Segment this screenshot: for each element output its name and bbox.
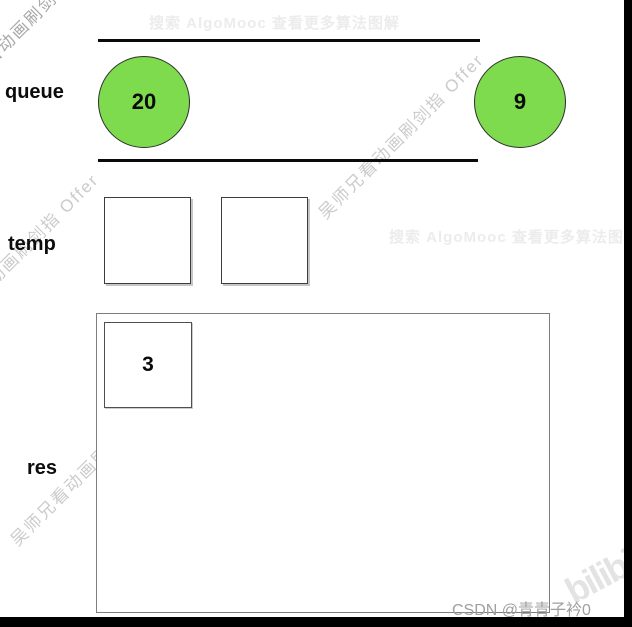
temp-row-label: temp (8, 233, 56, 256)
res-cell-value: 3 (142, 353, 154, 377)
diagonal-watermark: 吴师兄看动画刷剑指 Offer (312, 47, 489, 224)
queue-node-value: 9 (514, 89, 526, 115)
right-letterbox-bar (624, 0, 632, 627)
queue-lane-bottom-line (98, 159, 478, 162)
bottom-letterbox-bar (0, 617, 632, 627)
temp-slot-empty (221, 197, 308, 284)
queue-node-value: 20 (132, 89, 156, 115)
algomooc-watermark-middle: 搜索 AlgoMooc 查看更多算法图解 (389, 226, 632, 247)
temp-slot-empty (104, 197, 191, 284)
queue-node-20: 20 (98, 56, 190, 148)
queue-row-label: queue (5, 81, 64, 104)
algomooc-watermark-top: 搜索 AlgoMooc 查看更多算法图解 (149, 12, 400, 33)
res-row-label: res (27, 457, 57, 480)
queue-node-9: 9 (474, 56, 566, 148)
queue-lane-top-line (98, 39, 480, 42)
res-container-box: 3 (96, 313, 550, 613)
res-cell-3: 3 (104, 322, 192, 408)
algorithm-diagram-frame: 搜索 AlgoMooc 查看更多算法图解 搜索 AlgoMooc 查看更多算法图… (0, 0, 632, 627)
